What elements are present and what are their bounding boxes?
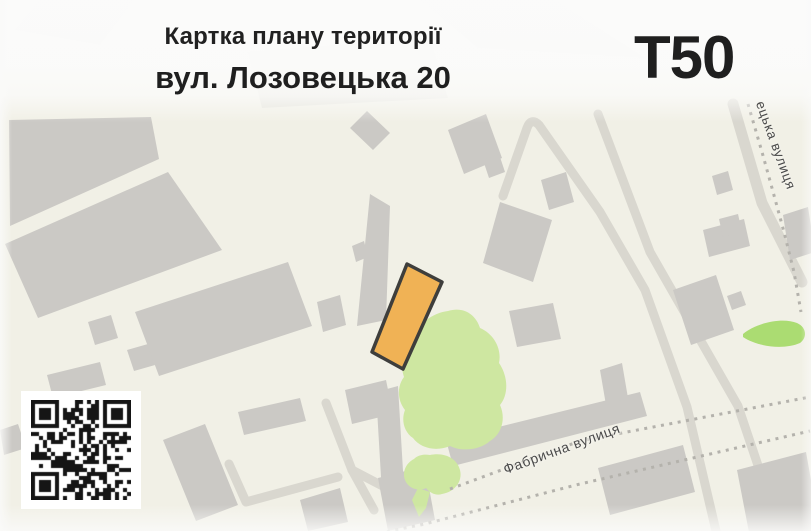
qr-card [21, 391, 141, 509]
plan-code: T50 [634, 28, 734, 88]
qr-code [31, 400, 131, 500]
building-shape [509, 303, 561, 347]
territory-plan-card: Картка плану території вул. Лозовецька 2… [0, 0, 811, 531]
card-address: вул. Лозовецька 20 [103, 61, 503, 95]
card-title: Картка плану території [103, 24, 503, 50]
